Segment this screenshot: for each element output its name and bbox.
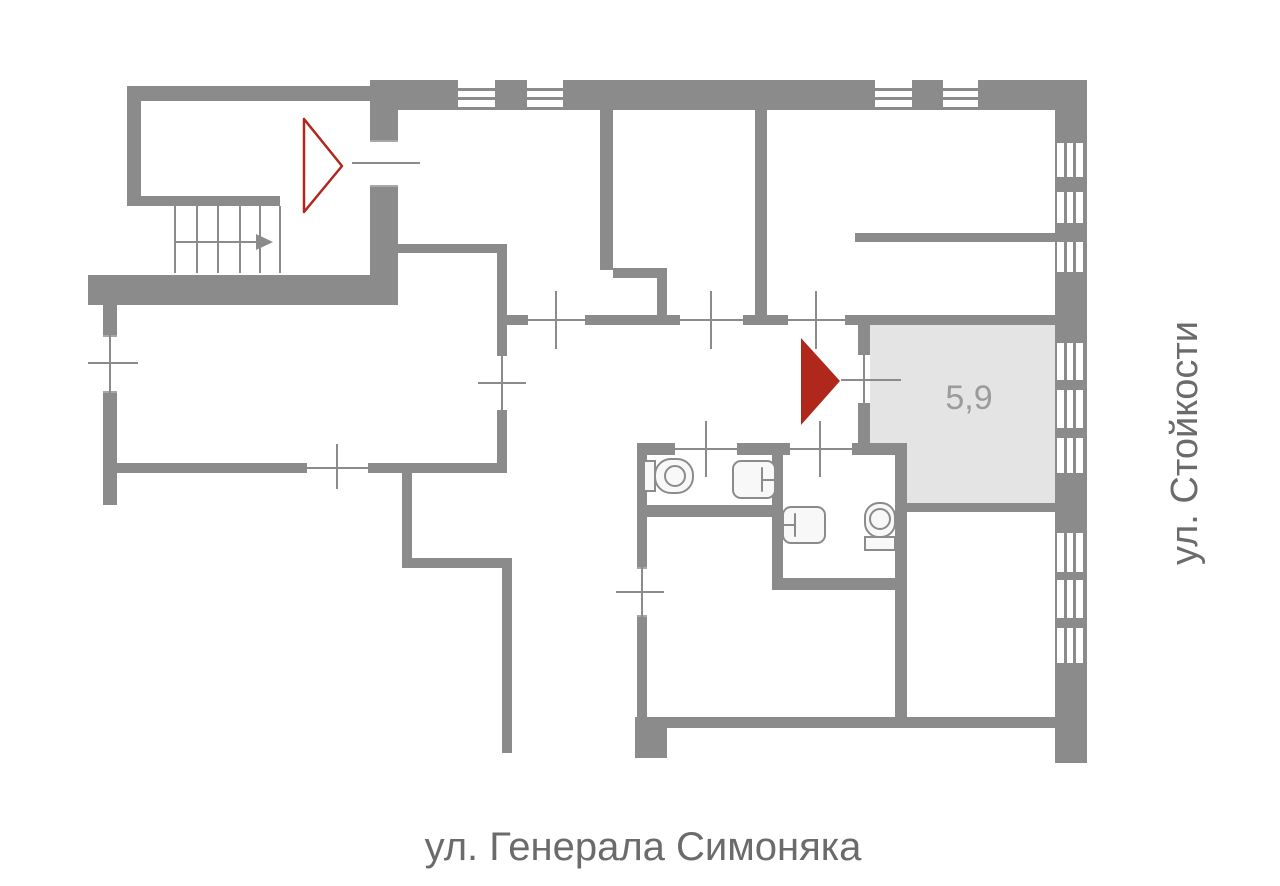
wall-segment xyxy=(398,244,507,253)
window-icon xyxy=(1057,343,1083,380)
toilet-icon xyxy=(865,503,895,550)
wall-segment xyxy=(783,578,907,590)
wall-segment xyxy=(895,443,907,718)
window-icon xyxy=(1057,242,1083,272)
window-icon xyxy=(1057,192,1083,223)
window-icon xyxy=(1057,390,1083,428)
door-opening-icon xyxy=(788,291,845,349)
window-icon xyxy=(943,80,978,107)
window-opening-icon xyxy=(616,567,664,617)
wall-segment xyxy=(127,86,370,101)
door-opening-icon xyxy=(680,291,743,349)
wall-segment xyxy=(103,463,507,473)
door-opening-icon xyxy=(528,291,585,349)
street-label-bottom: ул. Генерала Симоняка xyxy=(425,825,863,869)
window-icon xyxy=(1057,533,1083,572)
wall-segment xyxy=(370,80,398,305)
wall-segment xyxy=(88,275,398,305)
window-icon xyxy=(1057,580,1083,618)
wall-segment xyxy=(127,196,280,206)
door-opening-icon xyxy=(790,421,852,477)
apartment-entrance-arrow-icon xyxy=(801,338,840,425)
wall-segment xyxy=(855,233,1055,242)
floor-plan-canvas: 5,9 ул. Генерала Симоняка ул. Стойкости xyxy=(0,0,1280,886)
stair-direction-arrow xyxy=(175,234,273,250)
window-icon xyxy=(875,80,912,107)
window-icon xyxy=(527,80,563,107)
right-wall-windows xyxy=(1057,143,1083,663)
wall-segment xyxy=(127,86,141,206)
wall-segment xyxy=(907,503,1055,512)
window-opening-icon xyxy=(88,335,138,393)
wall-segment xyxy=(402,473,412,563)
window-opening-icon xyxy=(352,140,420,187)
sink-icon xyxy=(783,507,825,543)
room-area-label: 5,9 xyxy=(945,379,992,417)
stairs-icon xyxy=(175,206,280,273)
door-opening-icon xyxy=(307,444,368,489)
wall-segment xyxy=(858,315,870,355)
wall-segment xyxy=(502,568,512,753)
window-icon xyxy=(1057,143,1083,177)
toilet-icon xyxy=(644,459,693,493)
wall-segment xyxy=(637,505,772,517)
street-label-right: ул. Стойкости xyxy=(1164,321,1206,565)
wall-segment xyxy=(402,558,512,568)
floor-plan-page: 5,9 ул. Генерала Симоняка ул. Стойкости xyxy=(0,0,1280,886)
sink-icon xyxy=(733,461,775,498)
wall-segment xyxy=(635,717,1087,728)
door-opening-icon xyxy=(478,356,526,410)
wall-segment xyxy=(755,103,767,325)
building-entrance-icon xyxy=(304,119,342,212)
wall-segment xyxy=(613,268,667,278)
window-icon xyxy=(1057,438,1083,473)
window-icon xyxy=(1057,628,1083,663)
wall-segment xyxy=(635,717,667,758)
wall-segment xyxy=(600,103,613,270)
window-icon xyxy=(458,80,495,107)
